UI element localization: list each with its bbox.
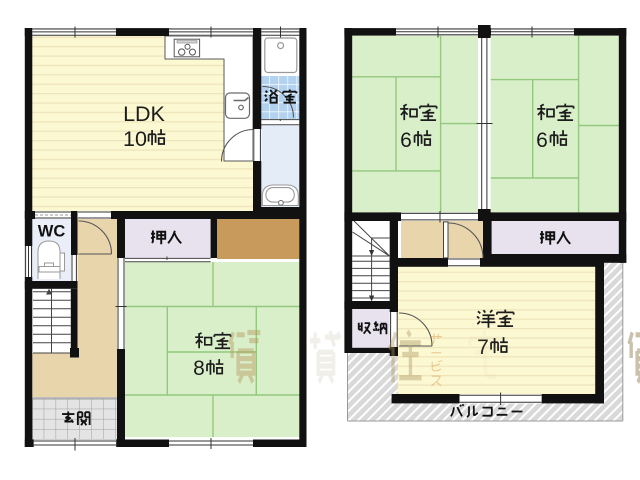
svg-text:6: 6 bbox=[400, 129, 412, 152]
svg-text:WC: WC bbox=[38, 223, 66, 241]
svg-text:10: 10 bbox=[123, 127, 147, 151]
svg-text:6: 6 bbox=[536, 129, 548, 152]
svg-text:LDK: LDK bbox=[123, 102, 165, 126]
svg-text:8: 8 bbox=[193, 357, 205, 380]
